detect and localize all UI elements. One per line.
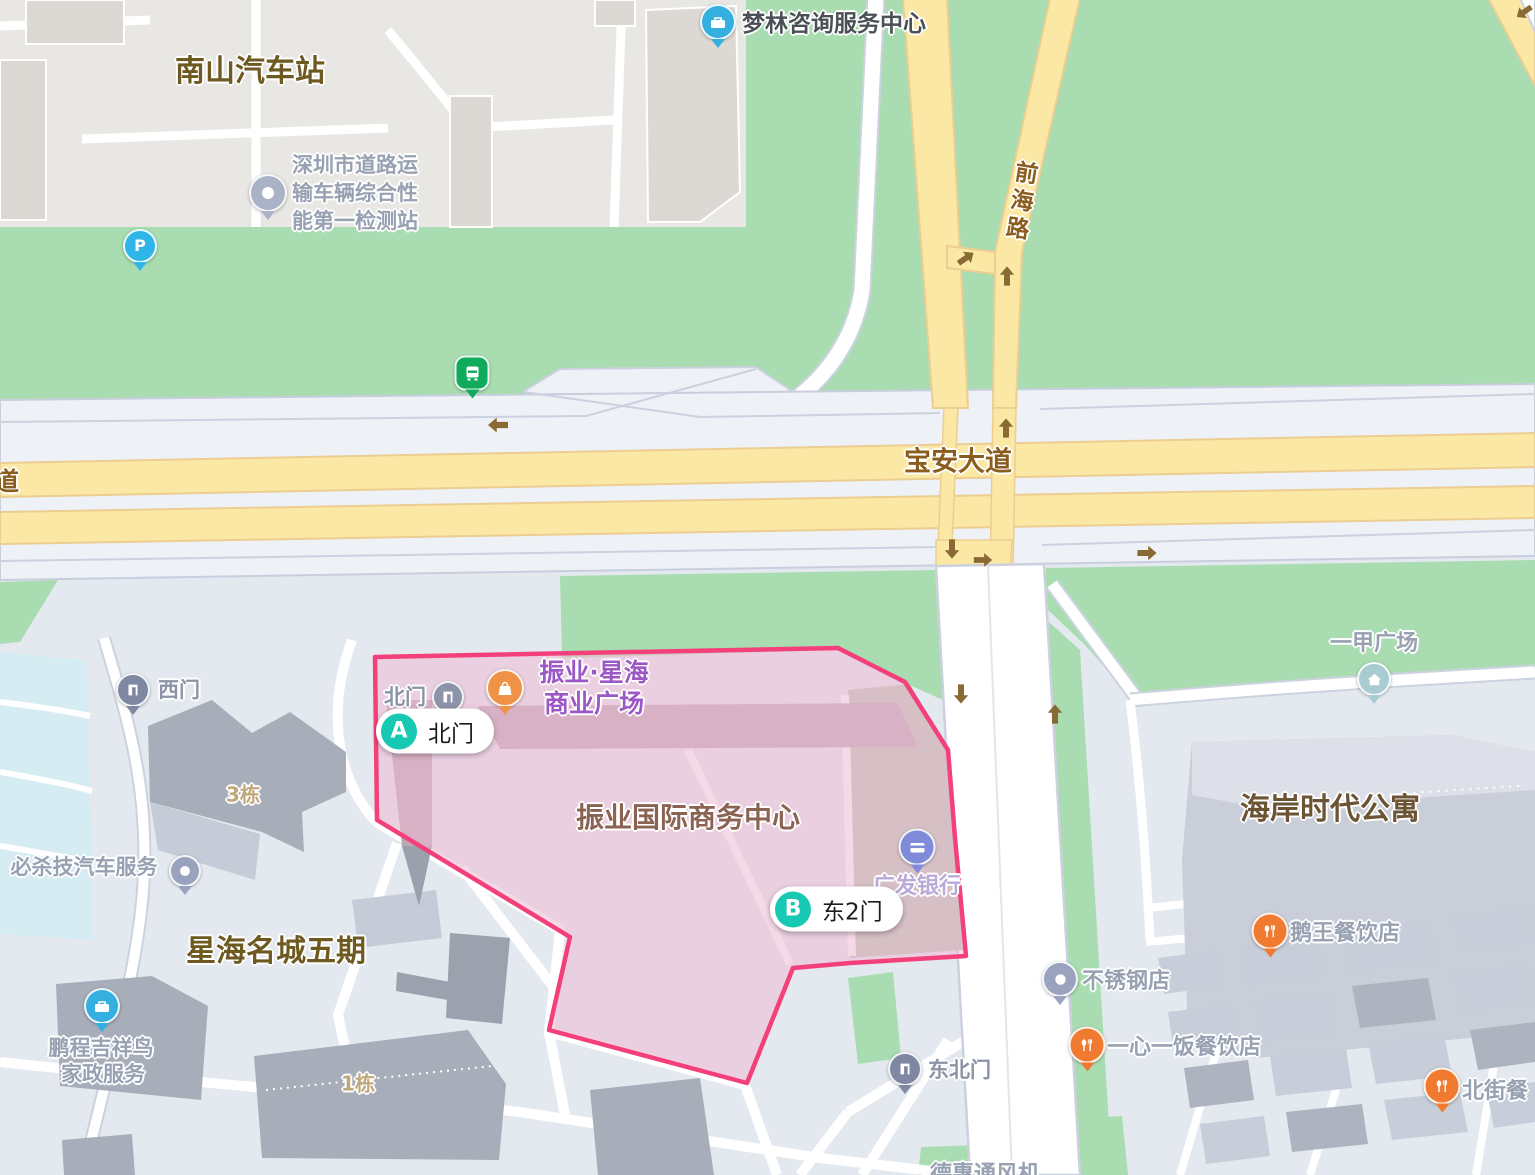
water-area (0, 652, 94, 940)
dot-icon (176, 862, 194, 880)
baoan-avenue-band (0, 367, 1535, 580)
restaurant-icon (1261, 922, 1280, 941)
bisha-auto-pin[interactable] (169, 855, 201, 887)
route-marker-a[interactable]: A 北门 (376, 709, 494, 754)
stainless-shop-pin[interactable] (1042, 961, 1078, 997)
route-a-badge: A (381, 713, 417, 749)
door-icon (439, 688, 457, 706)
route-b-label: 东2门 (822, 892, 883, 926)
shopping-bag-icon (495, 678, 515, 698)
menglin-pin[interactable] (700, 4, 736, 40)
ewang-restaurant-pin[interactable] (1252, 913, 1289, 950)
bank-pin[interactable] (899, 829, 936, 866)
route-a-label: 北门 (428, 714, 474, 748)
parking-pin[interactable]: P (123, 229, 157, 263)
northeast-gate-pin[interactable] (888, 1052, 922, 1086)
yixinyifan-pin[interactable] (1069, 1027, 1106, 1064)
yijia-plaza-pin[interactable] (1357, 662, 1391, 696)
map-canvas[interactable]: 南山汽车站 深圳市道路运 输车辆综合性 能第一检测站 梦林咨询服务中心 前海路 … (0, 0, 1535, 1175)
briefcase-icon (708, 12, 728, 32)
west-gate-pin[interactable] (116, 673, 150, 707)
route-b-badge: B (775, 891, 811, 927)
door-icon (124, 681, 142, 699)
dot-icon (1051, 970, 1070, 989)
restaurant-icon (1433, 1077, 1452, 1096)
parking-icon: P (134, 238, 146, 254)
district-northwest (0, 0, 746, 227)
beijie-restaurant-pin[interactable] (1424, 1068, 1461, 1105)
basemap-layers (0, 0, 1535, 1175)
door-icon (896, 1060, 914, 1078)
shopping-plaza-pin[interactable] (486, 669, 524, 707)
bus-icon (462, 363, 482, 383)
house-icon (1365, 670, 1384, 689)
restaurant-icon (1078, 1036, 1097, 1055)
bank-card-icon (907, 837, 927, 857)
briefcase-icon (92, 996, 112, 1016)
pengcheng-pin[interactable] (84, 988, 120, 1024)
bus-stop-pin[interactable] (455, 356, 490, 391)
route-marker-b[interactable]: B 东2门 (770, 887, 903, 932)
dot-icon (258, 183, 278, 203)
inspection-station-pin[interactable] (249, 174, 287, 212)
